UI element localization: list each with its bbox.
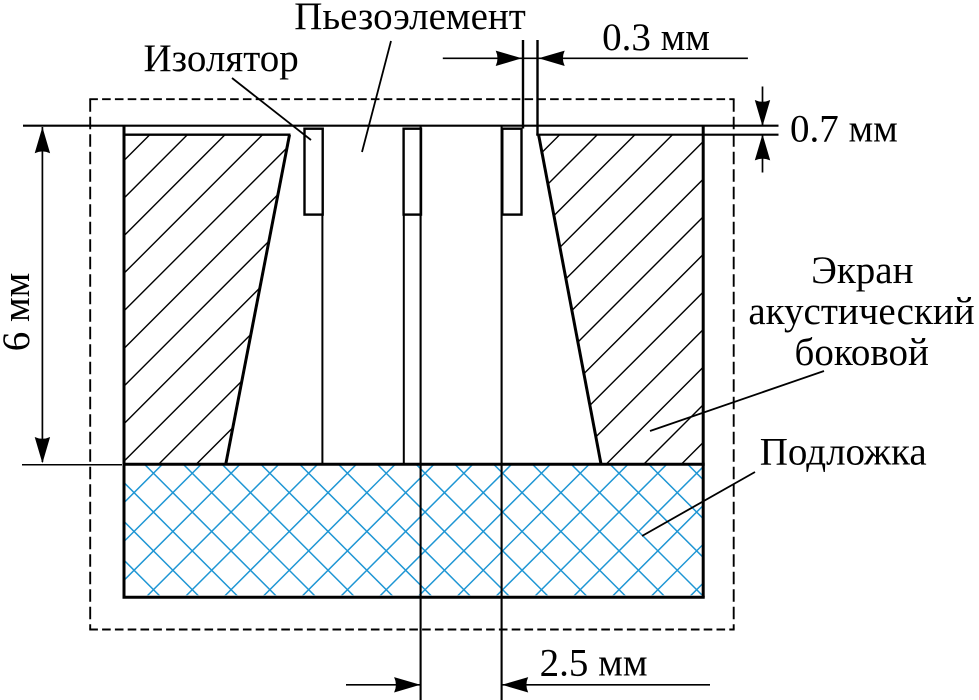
svg-text:Пьезоэлемент: Пьезоэлемент — [294, 0, 526, 38]
svg-text:акустический: акустический — [748, 290, 974, 333]
svg-text:Экран: Экран — [811, 249, 913, 292]
svg-text:0.3 мм: 0.3 мм — [602, 16, 710, 59]
svg-text:боковой: боковой — [795, 331, 929, 374]
svg-text:Изолятор: Изолятор — [144, 37, 299, 80]
svg-text:Подложка: Подложка — [760, 431, 927, 474]
svg-text:6 мм: 6 мм — [0, 273, 38, 352]
svg-text:2.5 мм: 2.5 мм — [540, 642, 648, 685]
svg-text:0.7 мм: 0.7 мм — [790, 107, 898, 150]
